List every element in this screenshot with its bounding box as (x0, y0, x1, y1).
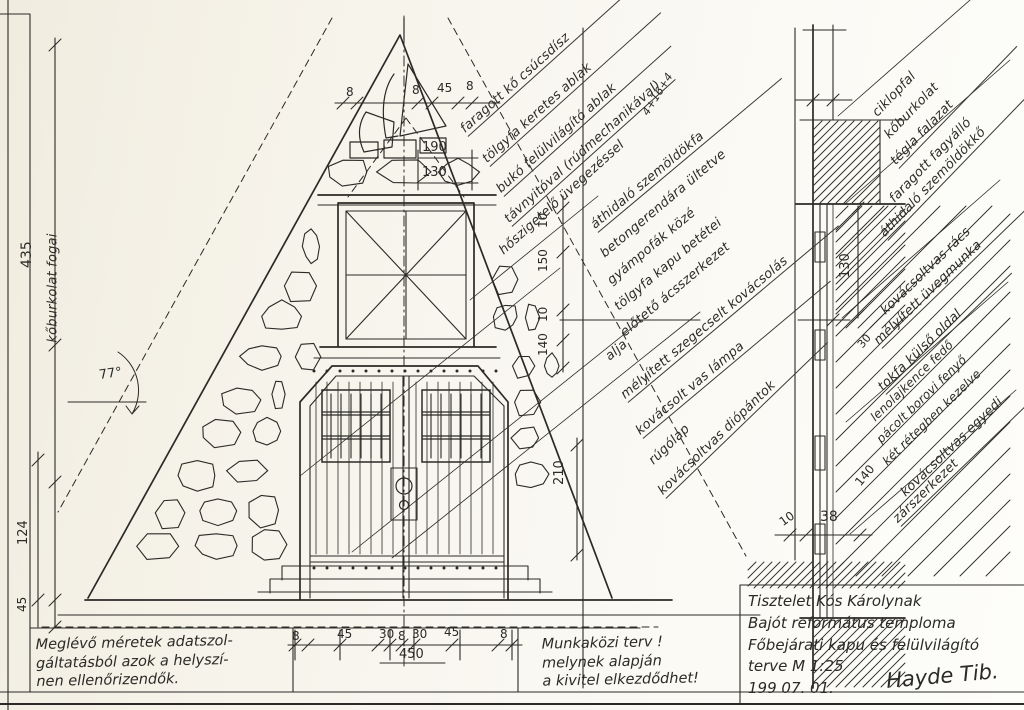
dimension-label: 45 (337, 628, 352, 640)
dimension-label: 77° (98, 366, 123, 382)
dimension-label: 10 (537, 213, 549, 228)
dimension-label: 130 (422, 166, 447, 179)
dimension-label: 8 (292, 630, 300, 642)
dimension-label: 8 (412, 84, 420, 96)
dimension-label: 45 (444, 626, 459, 638)
note-working-plan: Munkaközi terv !melynek alapjána kivitel… (541, 632, 699, 691)
dimension-label: 38 (820, 510, 838, 524)
dimension-label: 30 (379, 628, 394, 640)
title-block-line: Tisztelet Kós Károlynak (748, 591, 979, 613)
dimension-label: 190 (422, 141, 447, 154)
dimension-label: 124 (17, 520, 30, 545)
dimension-label: 45 (437, 82, 452, 94)
dimension-label: 8 (398, 630, 406, 642)
note-line: a kivitel elkezdődhet! (542, 669, 699, 691)
dimension-label: 435 (20, 241, 34, 268)
dimension-label: 210 (553, 460, 566, 485)
dimension-label: 450 (399, 648, 424, 661)
title-block-line: Főbejárati kapu és felülvilágító (748, 635, 979, 657)
note-existing-dimensions: Meglévő méretek adatszol-gáltatásból azo… (35, 632, 233, 692)
dimension-label: 130 (839, 253, 852, 278)
annotation-text: kőburkolat fogai (46, 233, 60, 342)
dimension-label: 8 (466, 80, 474, 92)
dimension-label: 8 (346, 86, 354, 98)
title-block-line: Bajót református temploma (748, 613, 979, 635)
dimension-label: 8 (500, 628, 508, 640)
dimension-label: 45 (16, 597, 28, 612)
dimension-label: 10 (537, 307, 549, 322)
dimension-label: 140 (537, 333, 549, 356)
dimension-label: 150 (537, 249, 549, 272)
drawing-sheet: faragott kő csúcsdísztölgyfa keretes abl… (0, 0, 1024, 710)
dimension-label: 30 (412, 628, 427, 640)
